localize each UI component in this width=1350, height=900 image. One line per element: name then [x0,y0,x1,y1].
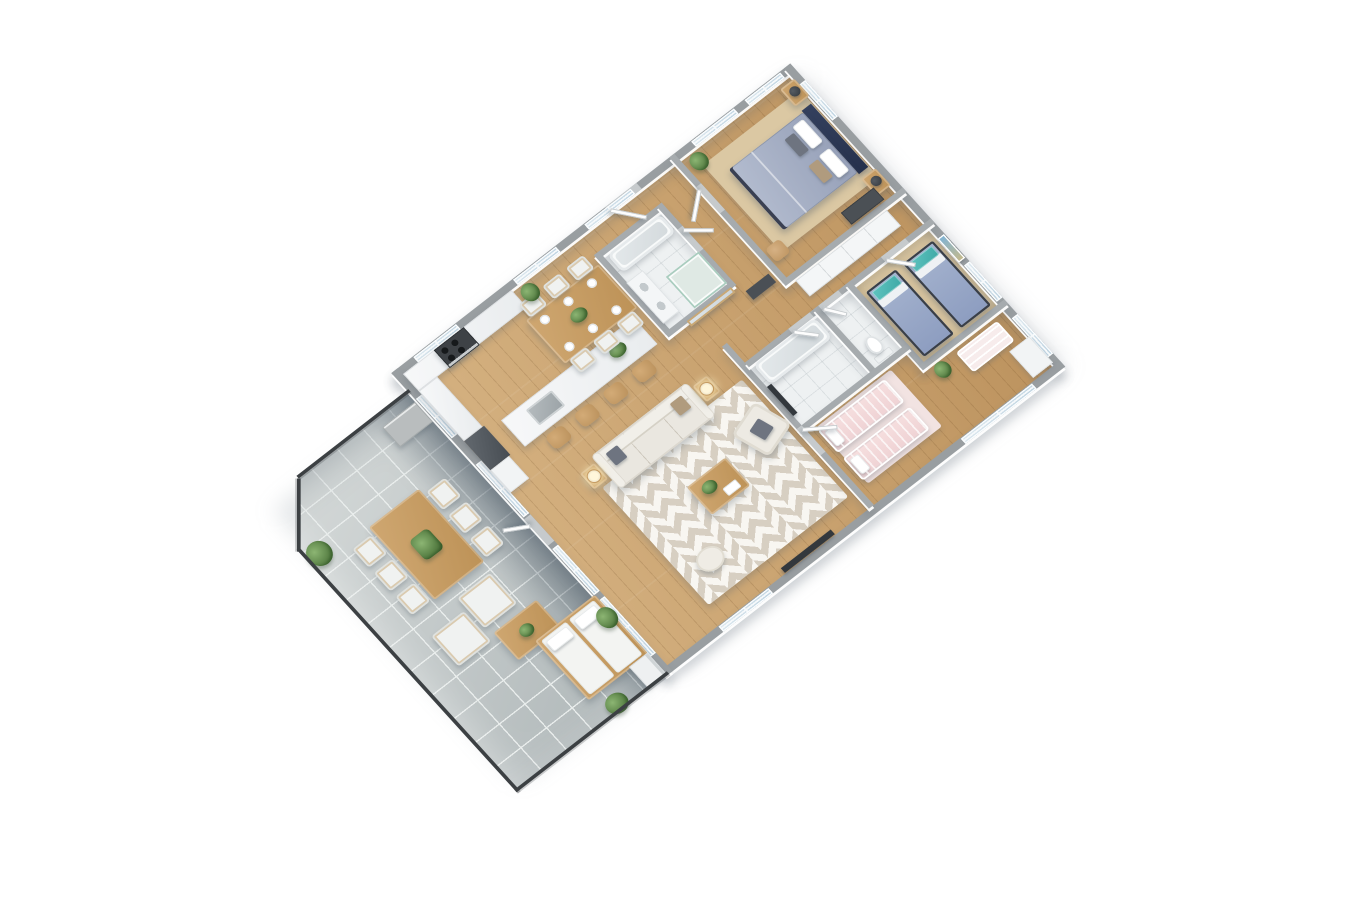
ensuite-door-leaf [683,228,714,232]
armchair-pillow [749,418,774,440]
coffee-table-plant [699,477,721,497]
floorplan-render-canvas [0,0,1350,900]
patio-coffee-plant [516,620,537,639]
floorplan-3d-scene [242,58,1079,799]
patio-railing-corner [297,479,301,552]
coffee-table-tray [722,479,741,496]
